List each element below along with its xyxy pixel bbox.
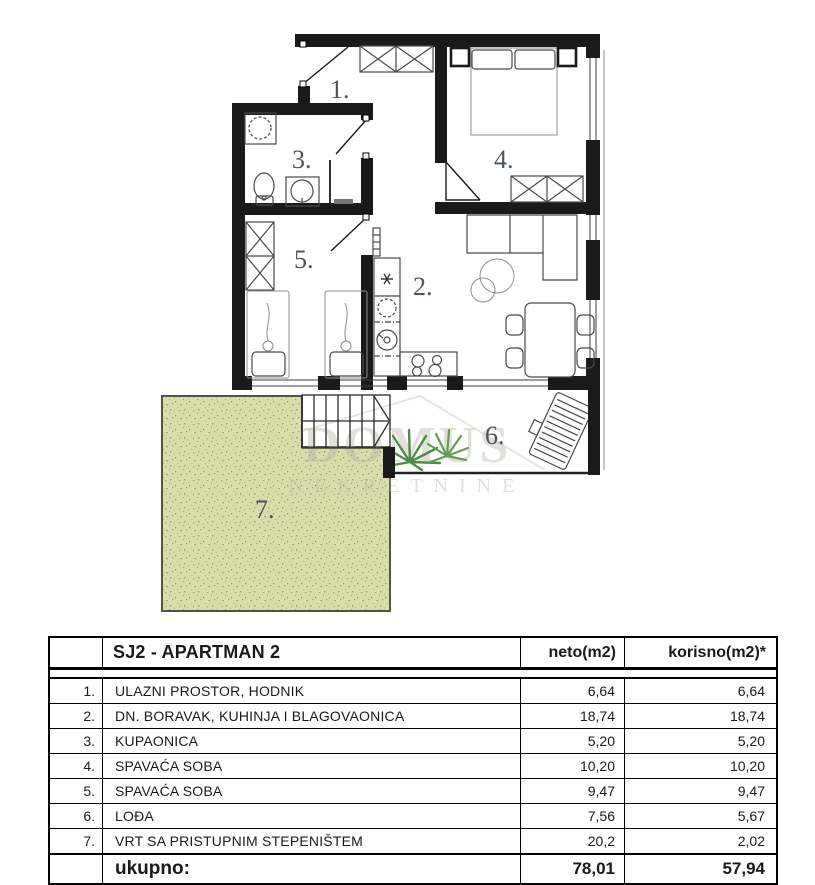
neto-value: 18,74 (520, 704, 624, 728)
total-empty-cell (50, 855, 102, 883)
header-spacer (50, 670, 776, 679)
korisno-value: 9,47 (624, 779, 774, 803)
bedroom4-furniture (451, 48, 583, 202)
room-name: LOĐA (102, 804, 520, 828)
row-number: 5. (50, 779, 102, 803)
table-total-row: ukupno: 78,01 57,94 (50, 855, 776, 883)
korisno-value: 10,20 (624, 754, 774, 778)
room-4-label: 4. (494, 145, 514, 174)
room-1-label: 1. (330, 75, 350, 104)
col-header-korisno: korisno(m2)* (624, 638, 774, 667)
row-number: 3. (50, 729, 102, 753)
neto-value: 5,20 (520, 729, 624, 753)
sun-lounger-icon (520, 388, 593, 470)
room-name: KUPAONICA (102, 729, 520, 753)
table-row: 5. SPAVAĆA SOBA 9,47 9,47 (50, 779, 776, 804)
shower-icon (330, 160, 353, 204)
neto-value: 9,47 (520, 779, 624, 803)
entry-wardrobe-icon (360, 46, 433, 72)
col-header-neto: neto(m2) (520, 638, 624, 667)
korisno-value: 5,20 (624, 729, 774, 753)
washing-machine-icon (245, 113, 276, 144)
total-neto: 78,01 (520, 855, 624, 883)
korisno-value: 6,64 (624, 679, 774, 703)
plant-table-icon (471, 259, 514, 302)
dining-table-icon (525, 303, 575, 377)
nightstand-icon (451, 48, 576, 66)
korisno-value: 5,67 (624, 804, 774, 828)
neto-value: 10,20 (520, 754, 624, 778)
table-row: 4. SPAVAĆA SOBA 10,20 10,20 (50, 754, 776, 779)
row-number: 2. (50, 704, 102, 728)
row-number: 6. (50, 804, 102, 828)
living-furniture (467, 215, 594, 377)
row-number: 1. (50, 679, 102, 703)
table-header-row: SJ2 - APARTMAN 2 neto(m2) korisno(m2)* (50, 638, 776, 670)
area-table: SJ2 - APARTMAN 2 neto(m2) korisno(m2)* 1… (48, 636, 778, 885)
boiler-icon (378, 299, 396, 317)
neto-value: 6,64 (520, 679, 624, 703)
row-number: 4. (50, 754, 102, 778)
table-row: 1. ULAZNI PROSTOR, HODNIK 6,64 6,64 (50, 679, 776, 704)
room-name: VRT SA PRISTUPNIM STEPENIŠTEM (102, 829, 520, 853)
room-2-label: 2. (413, 272, 433, 301)
table-row: 3. KUPAONICA 5,20 5,20 (50, 729, 776, 754)
korisno-value: 18,74 (624, 704, 774, 728)
terrace-area (384, 50, 604, 473)
stove-icon (412, 355, 442, 377)
korisno-value: 2,02 (624, 829, 774, 853)
table-title: SJ2 - APARTMAN 2 (102, 638, 520, 667)
double-bed-icon (471, 48, 557, 135)
room-name: ULAZNI PROSTOR, HODNIK (102, 679, 520, 703)
watermark-line1: DOMUS (303, 417, 512, 474)
kitchen-icons (373, 228, 457, 377)
total-label: ukupno: (102, 855, 520, 883)
header-empty-cell (50, 638, 102, 667)
single-bed-icon (247, 291, 289, 378)
watermark: DOMUS NEKRETNINE (289, 396, 545, 497)
room-7-label: 7. (255, 495, 275, 524)
table-row: 6. LOĐA 7,56 5,67 (50, 804, 776, 829)
vent-icon (373, 228, 380, 256)
room-3-label: 3. (292, 145, 312, 174)
fridge-icon (381, 274, 393, 284)
room-name: SPAVAĆA SOBA (102, 754, 520, 778)
wardrobe-icon (246, 222, 274, 290)
room-name: SPAVAĆA SOBA (102, 779, 520, 803)
neto-value: 7,56 (520, 804, 624, 828)
neto-value: 20,2 (520, 829, 624, 853)
row-number: 7. (50, 829, 102, 853)
bathroom-sink-icon (286, 177, 319, 206)
sofa-icon (467, 215, 577, 280)
wardrobe-icon (511, 176, 583, 202)
kitchen-sink-icon (377, 330, 397, 350)
table-row: 7. VRT SA PRISTUPNIM STEPENIŠTEM 20,2 2,… (50, 829, 776, 855)
watermark-line2: NEKRETNINE (289, 475, 526, 497)
screenshot-root: DOMUS NEKRETNINE (0, 0, 815, 885)
room-5-label: 5. (294, 245, 314, 274)
room-name: DN. BORAVAK, KUHINJA I BLAGOVAONICA (102, 704, 520, 728)
floor-plan: DOMUS NEKRETNINE (0, 0, 815, 630)
single-bed-icon (325, 291, 367, 378)
total-korisno: 57,94 (624, 855, 774, 883)
table-row: 2. DN. BORAVAK, KUHINJA I BLAGOVAONICA 1… (50, 704, 776, 729)
toilet-icon (254, 173, 274, 205)
room-6-label: 6. (485, 421, 505, 450)
